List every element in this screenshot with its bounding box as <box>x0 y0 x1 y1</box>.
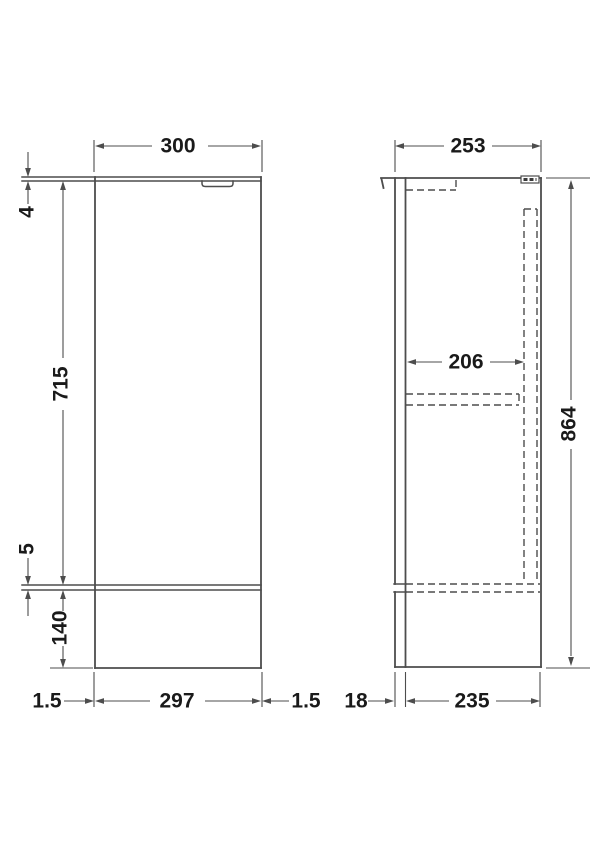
dim-front-right-gap: 1.5 <box>291 690 321 713</box>
dim-side-door-thickness: 18 <box>344 690 368 713</box>
dim-side-internal-depth: 206 <box>448 351 483 374</box>
drawing-background <box>0 0 600 849</box>
dim-front-plinth-height: 140 <box>49 610 72 645</box>
dim-front-door-width: 297 <box>159 690 194 713</box>
dim-front-bottom-gap: 5 <box>16 543 39 555</box>
dim-front-top-thickness: 4 <box>16 206 39 218</box>
dim-side-overall-depth: 253 <box>450 135 485 158</box>
dim-front-door-height: 715 <box>50 366 73 401</box>
dim-side-carcass-depth: 235 <box>454 690 489 713</box>
dim-front-left-gap: 1.5 <box>32 690 62 713</box>
dim-front-overall-width: 300 <box>160 135 195 158</box>
technical-drawing: 300 4 715 5 140 1.5 2 <box>0 0 600 849</box>
dim-side-overall-height: 864 <box>558 406 581 441</box>
dimension-drawing-canvas: 300 4 715 5 140 1.5 2 <box>0 0 600 849</box>
